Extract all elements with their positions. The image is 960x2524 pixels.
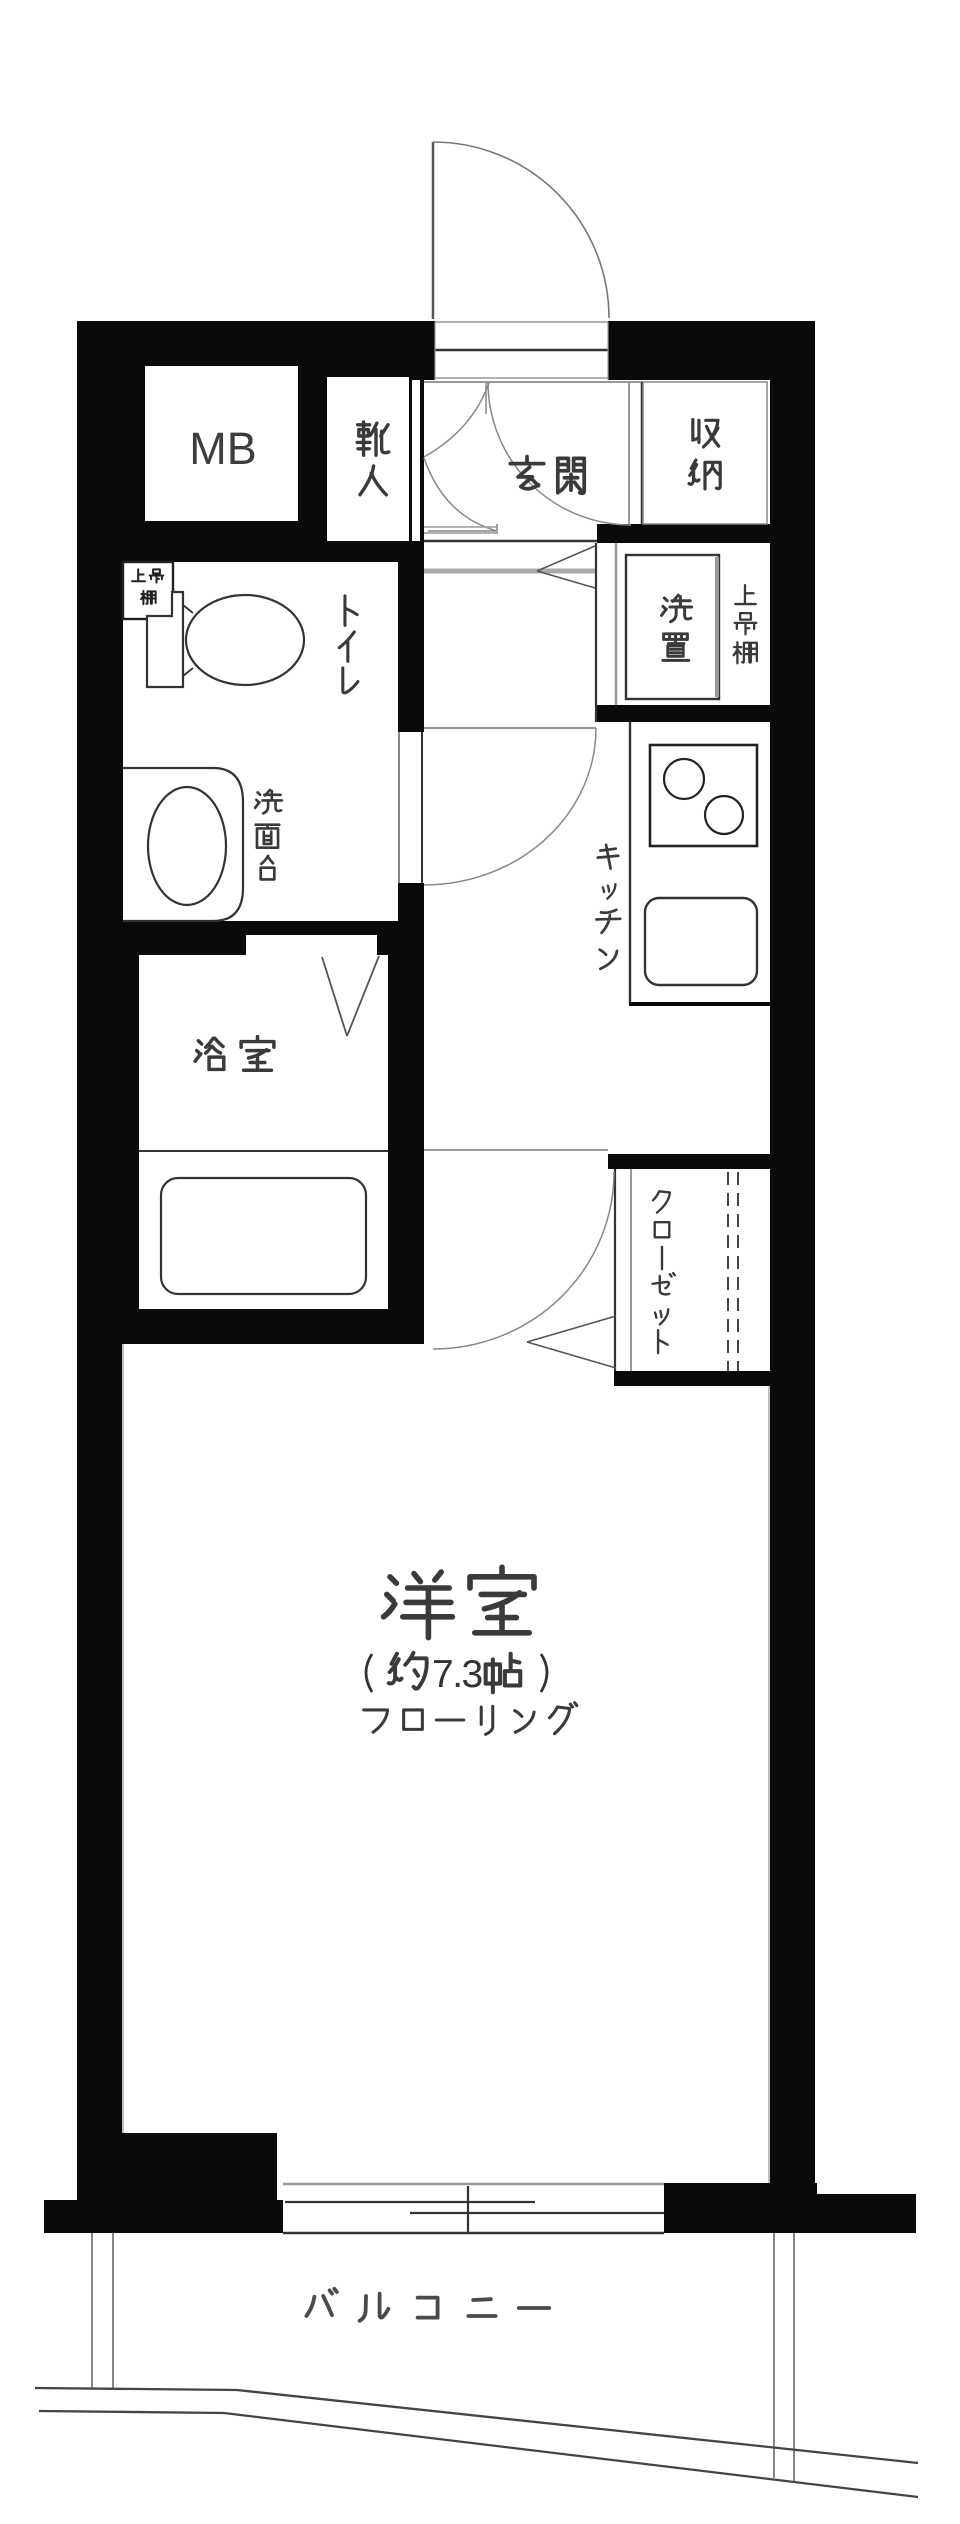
svg-text:MB: MB bbox=[189, 423, 257, 474]
svg-text:7.3: 7.3 bbox=[432, 1653, 482, 1696]
